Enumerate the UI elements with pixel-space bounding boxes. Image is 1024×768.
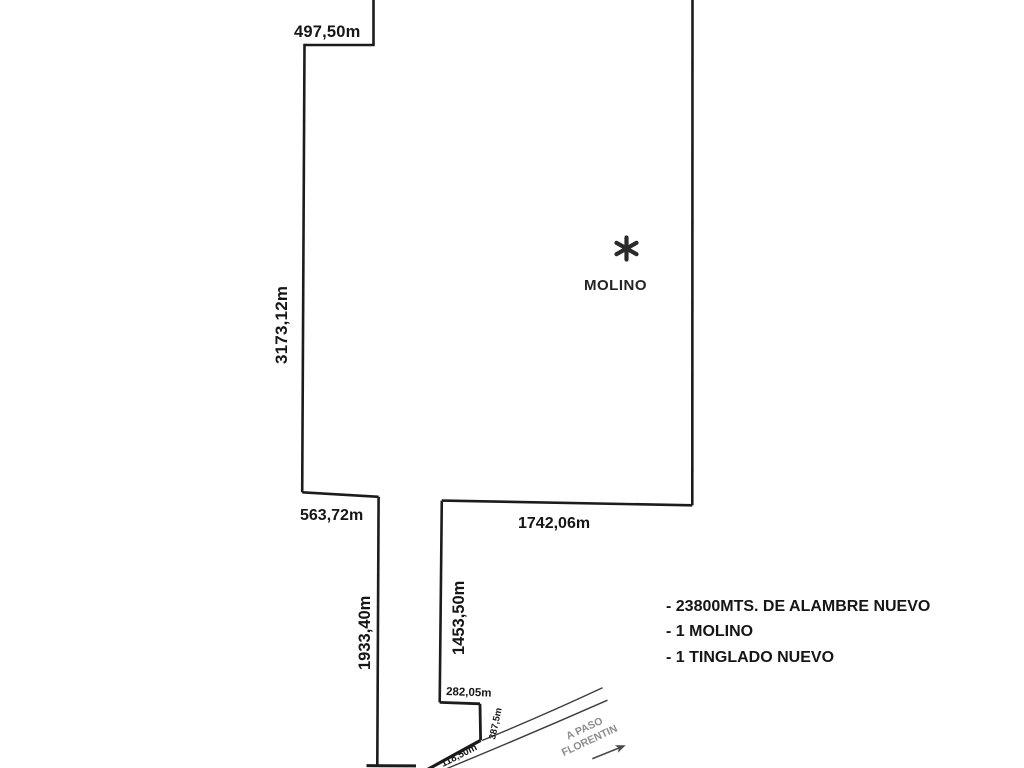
- svg-text:1933,40m: 1933,40m: [356, 596, 374, 670]
- svg-text:282,05m: 282,05m: [446, 686, 492, 700]
- svg-text:387,5m: 387,5m: [487, 707, 504, 741]
- svg-text:497,50m: 497,50m: [294, 23, 361, 41]
- svg-text:- 23800MTS. DE ALAMBRE NUEVO: - 23800MTS. DE ALAMBRE NUEVO: [666, 598, 930, 615]
- svg-text:MOLINO: MOLINO: [584, 277, 647, 294]
- svg-text:1742,06m: 1742,06m: [518, 515, 590, 532]
- svg-text:1453,50m: 1453,50m: [450, 581, 468, 655]
- svg-text:- 1 TINGLADO NUEVO: - 1 TINGLADO NUEVO: [666, 649, 834, 666]
- svg-text:3173,12m: 3173,12m: [272, 286, 291, 364]
- svg-text:- 1 MOLINO: - 1 MOLINO: [666, 623, 753, 640]
- svg-text:563,72m: 563,72m: [300, 507, 363, 524]
